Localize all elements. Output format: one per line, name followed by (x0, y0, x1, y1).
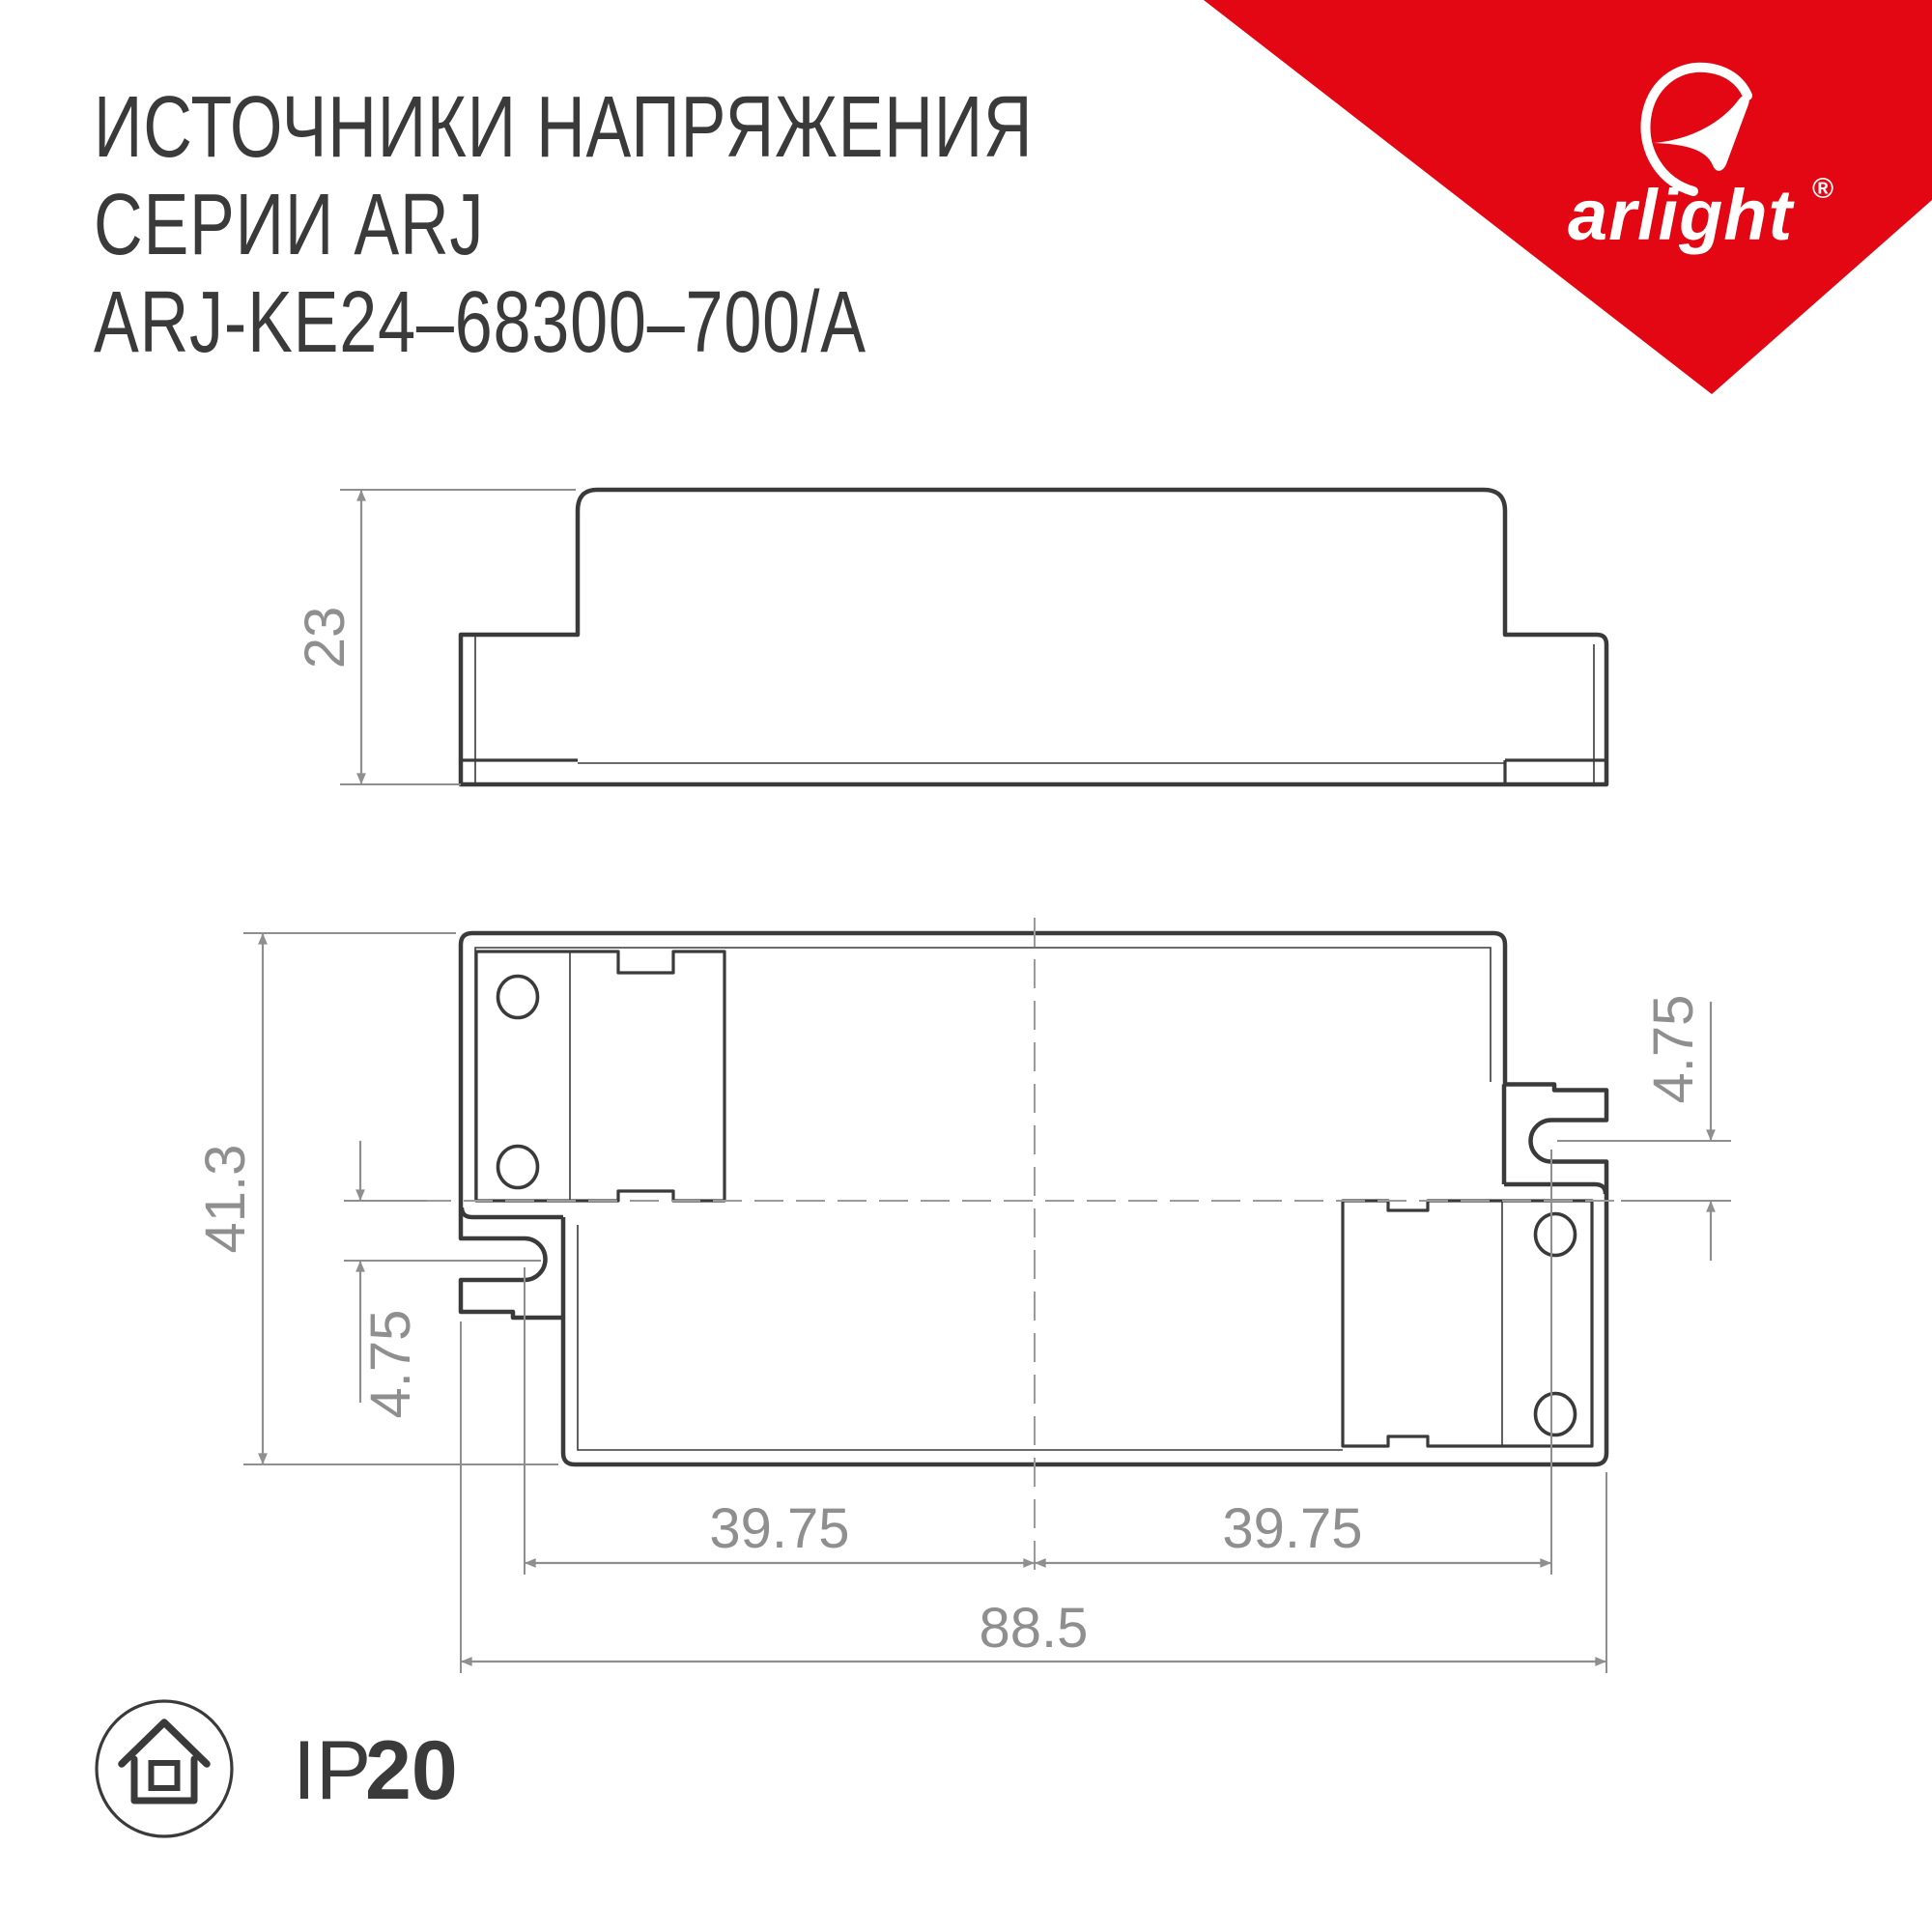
ip-rating-prefix: IP (293, 1724, 371, 1817)
mounting-hole (498, 977, 538, 1018)
mounting-bracket-bottom-right (1343, 1201, 1592, 1446)
ip-rating-value: 20 (365, 1724, 458, 1817)
arlight-wordmark: arlight (1568, 175, 1795, 255)
bracket-outline (1343, 1201, 1592, 1446)
dimension-slot-offset-right: 4.75 (1557, 995, 1731, 1261)
brand-triangle: arlight ® (1204, 0, 1932, 394)
dimension-total-width: 88.5 (461, 1321, 1606, 1673)
mounting-hole (1536, 1214, 1576, 1256)
top-view: 41.3 4.75 4.75 39.75 39.75 88.5 (194, 918, 1731, 1673)
registered-trademark-icon: ® (1812, 173, 1833, 205)
dim-slot-offset-left-label: 4.75 (359, 1310, 422, 1419)
bracket-outline (476, 952, 724, 1201)
title-line-2: СЕРИИ ARJ (94, 177, 484, 273)
dim-top-height-label: 41.3 (194, 1145, 257, 1254)
side-view-outline (461, 490, 1606, 784)
ip-rating-badge: IP 20 (97, 1701, 458, 1836)
mounting-hole (498, 1147, 538, 1188)
mounting-bracket-top-left (476, 952, 724, 1201)
side-view: 23 (294, 490, 1606, 784)
dim-slot-offset-right-label: 4.75 (1642, 995, 1705, 1104)
side-view-inner-lines (475, 635, 1594, 784)
indoor-use-house-icon (122, 1722, 207, 1801)
top-view-inner-walls (475, 948, 1491, 1450)
dim-hole-span-right-label: 39.75 (1222, 1497, 1362, 1560)
page-title: ИСТОЧНИКИ НАПРЯЖЕНИЯ СЕРИИ ARJ ARJ-KE24–… (94, 79, 1033, 371)
dim-side-height-label: 23 (294, 607, 356, 669)
title-line-1: ИСТОЧНИКИ НАПРЯЖЕНИЯ (94, 79, 1033, 176)
drawing-canvas: arlight ® ИСТОЧНИКИ НАПРЯЖЕНИЯ СЕРИИ ARJ… (0, 0, 1932, 1932)
dim-hole-span-left-label: 39.75 (709, 1497, 849, 1560)
title-line-3: ARJ-KE24–68300–700/A (94, 274, 867, 371)
datasheet-page: arlight ® ИСТОЧНИКИ НАПРЯЖЕНИЯ СЕРИИ ARJ… (0, 0, 1932, 1932)
dimension-hole-spans: 39.75 39.75 (525, 1150, 1551, 1575)
dim-total-width-label: 88.5 (980, 1597, 1089, 1660)
mounting-hole (1536, 1394, 1576, 1435)
dimension-side-height: 23 (294, 490, 576, 784)
